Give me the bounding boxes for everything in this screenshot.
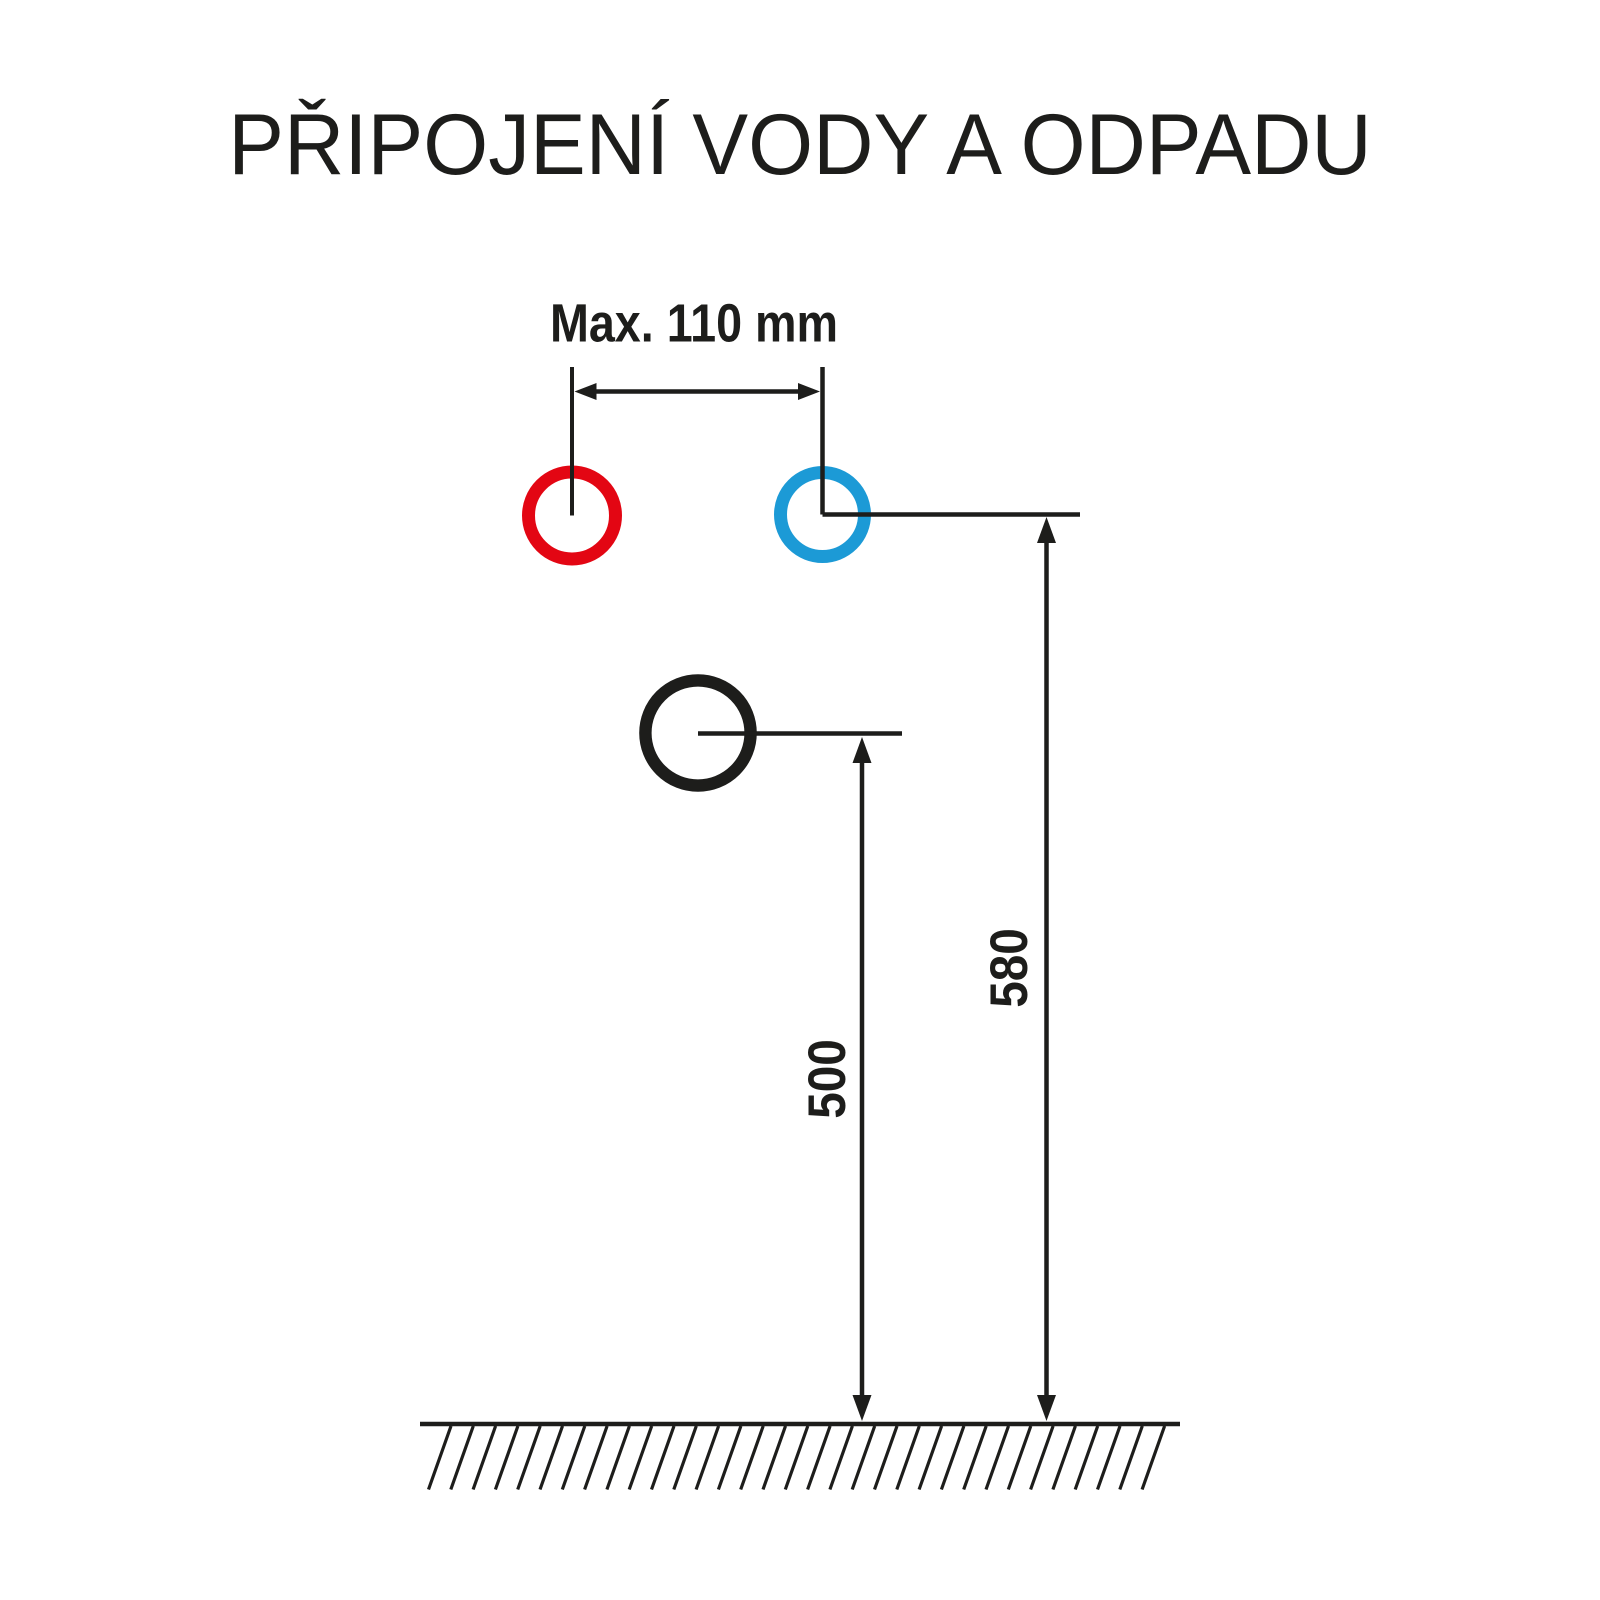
svg-text:Max. 110 mm: Max. 110 mm [550, 294, 838, 354]
svg-text:PŘIPOJENÍ VODY A ODPADU: PŘIPOJENÍ VODY A ODPADU [228, 96, 1372, 192]
svg-text:500: 500 [797, 1039, 857, 1119]
svg-text:580: 580 [979, 928, 1039, 1008]
